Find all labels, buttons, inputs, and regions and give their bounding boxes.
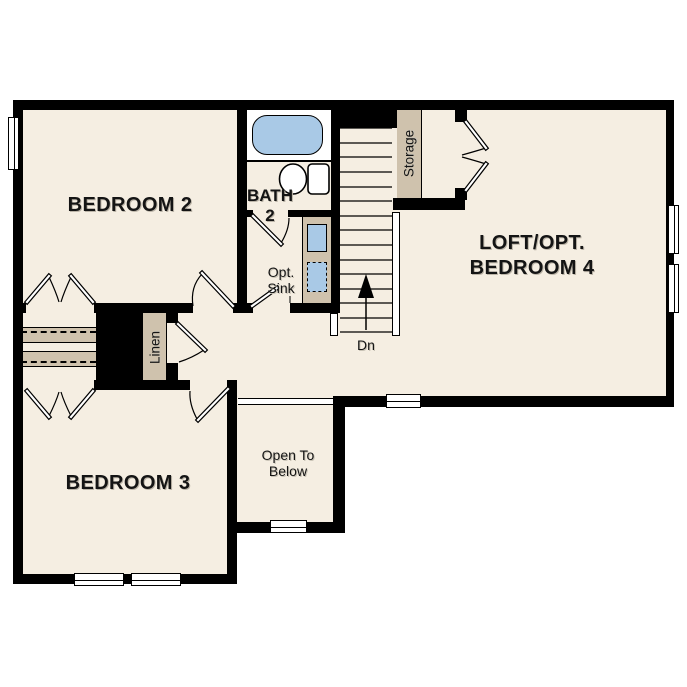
wall-open-below-right — [333, 396, 345, 533]
opt-sink-line-1: Opt. — [251, 264, 311, 280]
window-bedroom-3-bottom-left — [74, 573, 124, 586]
loft-label-line-1: LOFT/OPT. — [412, 231, 652, 256]
stairs-dn-label: Dn — [346, 337, 386, 353]
window-loft-bottom — [386, 394, 421, 408]
stair-stringer-left — [330, 313, 338, 336]
closet-rod-dashed-line — [21, 331, 96, 333]
open-to-below-label: Open To Below — [247, 447, 329, 479]
closet-rod-dashed-line — [21, 361, 96, 363]
bedroom-2-label: BEDROOM 2 — [30, 193, 230, 218]
opt-sink-line-2: Sink — [251, 280, 311, 296]
window-open-below-bottom — [270, 520, 307, 533]
tub-deck-edge — [247, 160, 331, 162]
wall-storage-stub-bottom — [455, 188, 467, 200]
linen-label: Linen — [148, 318, 163, 378]
wall-linen-stub-top — [167, 308, 178, 323]
loft-opt-bedroom-4-label: LOFT/OPT. BEDROOM 4 — [412, 231, 652, 281]
wall-left — [13, 100, 23, 584]
window-loft-right-lower — [668, 264, 679, 313]
wall-bedroom-3-bottom — [13, 574, 237, 584]
bath-2-label: BATH 2 — [238, 186, 302, 226]
bathtub — [252, 115, 323, 155]
wall-chase — [96, 305, 143, 390]
loft-label-line-2: BEDROOM 4 — [412, 256, 652, 281]
stair-stringer-right — [392, 212, 400, 336]
window-bedroom-2-left — [8, 117, 19, 170]
bath-2-label-line-1: BATH — [238, 186, 302, 206]
floor-plan: BEDROOM 2 BATH 2 LOFT/OPT. BEDROOM 4 BED… — [0, 0, 687, 687]
wall-linen-stub-bottom — [167, 363, 178, 385]
closet-rod-bedroom-3 — [21, 351, 96, 367]
wall-hall-seg-1 — [13, 303, 26, 313]
opt-sink-label: Opt. Sink — [251, 264, 311, 296]
wall-bedroom-3-top-right — [228, 380, 237, 390]
wall-top — [13, 100, 674, 110]
closet-rod-bedroom-2 — [21, 327, 96, 343]
open-to-below-line-1: Open To — [247, 447, 329, 463]
wall-hall-seg-3 — [233, 303, 253, 313]
wall-hall-seg-4 — [290, 303, 340, 313]
wall-storage-stub-top — [455, 100, 467, 122]
wall-stair-header — [331, 110, 397, 128]
bath-2-label-line-2: 2 — [238, 206, 302, 226]
open-to-below-line-2: Below — [247, 463, 329, 479]
storage-label: Storage — [402, 124, 417, 184]
bedroom-3-label: BEDROOM 3 — [28, 471, 228, 496]
vanity-sink — [307, 224, 327, 252]
window-bedroom-3-bottom-right — [131, 573, 181, 586]
wall-loft-bottom — [333, 396, 674, 407]
wall-bedroom-3-right — [227, 380, 237, 584]
open-to-below-railing — [238, 398, 333, 405]
wall-bath-stairs — [331, 100, 340, 313]
window-loft-right-upper — [668, 205, 679, 254]
